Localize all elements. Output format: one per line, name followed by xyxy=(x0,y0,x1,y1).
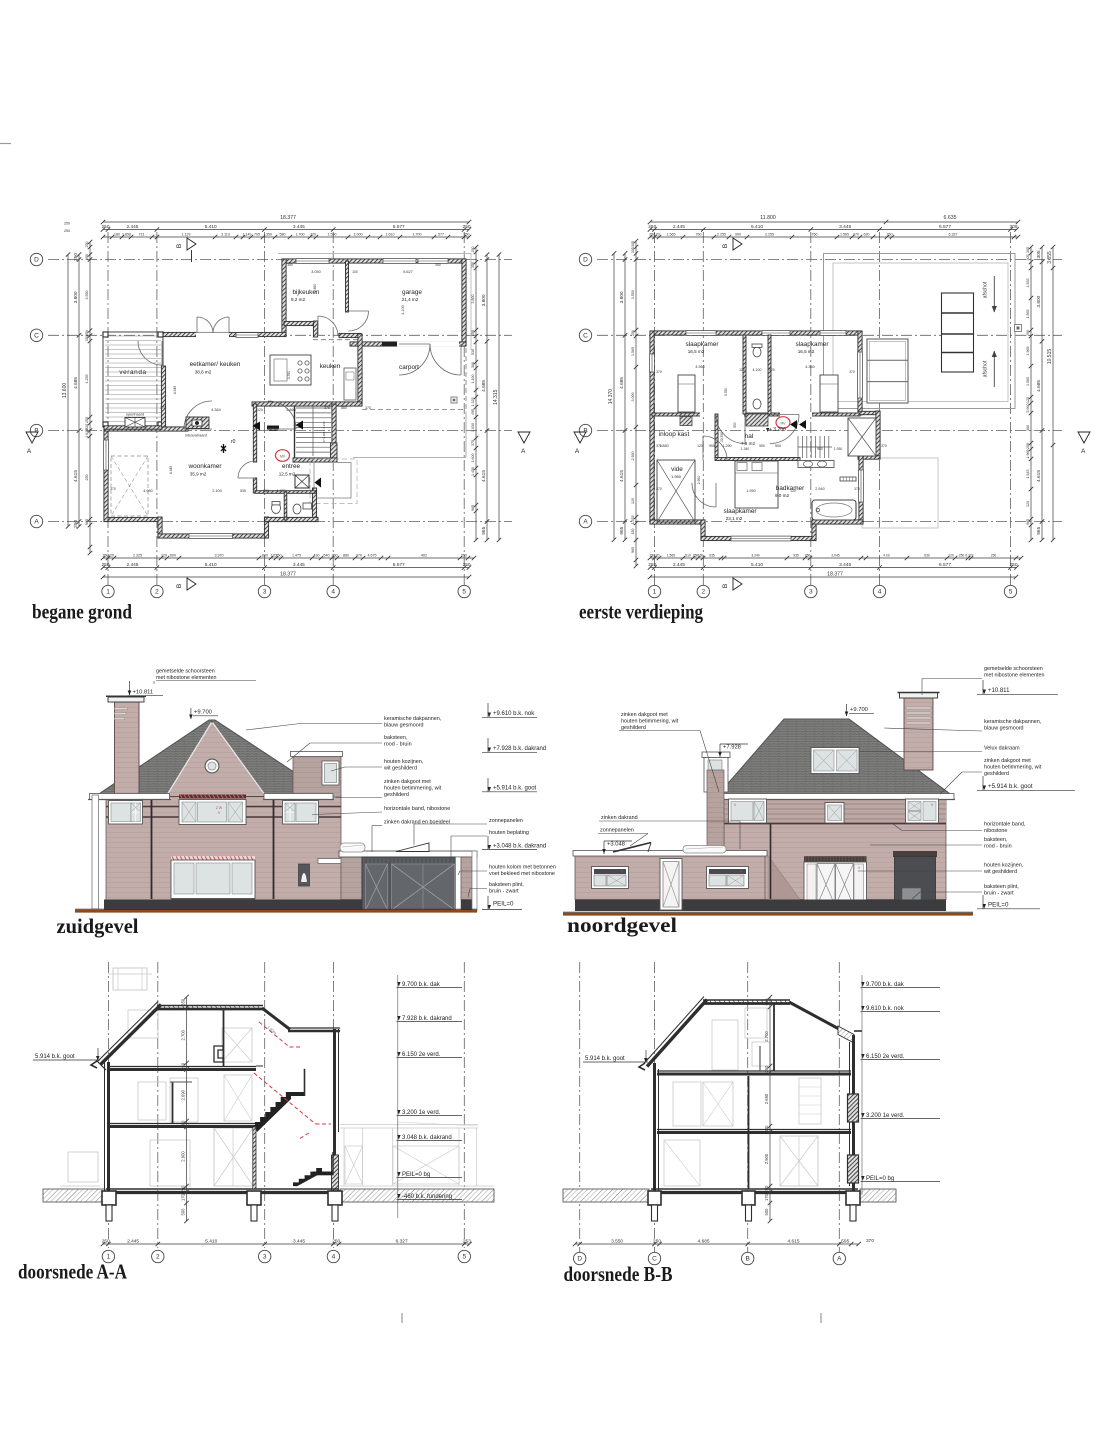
svg-text:3.445: 3.445 xyxy=(839,224,851,230)
svg-text:880: 880 xyxy=(341,406,347,410)
svg-text:afschot: afschot xyxy=(983,281,989,298)
svg-text:18.377: 18.377 xyxy=(280,572,296,578)
svg-text:12,5 m2: 12,5 m2 xyxy=(279,472,296,477)
svg-text:290: 290 xyxy=(764,1185,769,1193)
svg-text:305: 305 xyxy=(1036,250,1042,258)
svg-text:4.255: 4.255 xyxy=(85,375,89,384)
svg-text:120: 120 xyxy=(257,408,263,412)
svg-text:250: 250 xyxy=(464,232,470,236)
svg-text:120: 120 xyxy=(631,498,635,504)
svg-text:4.615: 4.615 xyxy=(619,470,625,482)
svg-text:zonnepanelen: zonnepanelen xyxy=(600,828,634,834)
svg-text:A: A xyxy=(837,1256,842,1263)
svg-text:3.550: 3.550 xyxy=(631,290,635,299)
svg-text:5.627: 5.627 xyxy=(403,270,413,274)
svg-text:1: 1 xyxy=(653,589,657,596)
svg-text:3.240: 3.240 xyxy=(751,553,759,557)
svg-text:250: 250 xyxy=(805,553,811,557)
svg-text:2.325: 2.325 xyxy=(133,553,142,557)
svg-text:14.315: 14.315 xyxy=(493,389,499,405)
svg-text:4.615: 4.615 xyxy=(481,470,487,482)
svg-text:1.565: 1.565 xyxy=(667,232,676,236)
svg-text:r0: r0 xyxy=(231,439,236,445)
svg-text:7.928 b.k. dakrand: 7.928 b.k. dakrand xyxy=(402,1016,452,1022)
svg-text:1.545: 1.545 xyxy=(1026,470,1030,479)
svg-text:120: 120 xyxy=(1026,501,1030,507)
svg-text:3.200 1e verd.: 3.200 1e verd. xyxy=(866,1113,905,1119)
svg-text:houten betimmering, wit: houten betimmering, wit xyxy=(621,719,679,725)
svg-text:250: 250 xyxy=(102,1238,110,1244)
svg-text:begane grond: begane grond xyxy=(32,600,132,624)
svg-text:350: 350 xyxy=(266,232,272,236)
svg-text:2.700: 2.700 xyxy=(181,1029,186,1040)
svg-text:4.615: 4.615 xyxy=(787,1238,799,1244)
svg-text:carport: carport xyxy=(399,364,419,371)
svg-text:630: 630 xyxy=(864,232,870,236)
svg-text:4: 4 xyxy=(332,1254,336,1261)
svg-text:760: 760 xyxy=(696,232,702,236)
svg-text:1.000: 1.000 xyxy=(354,232,363,236)
svg-text:2.700: 2.700 xyxy=(764,1031,769,1042)
svg-text:entree: entree xyxy=(282,463,301,470)
svg-text:2.445: 2.445 xyxy=(673,562,685,568)
svg-text:+9.610 b.k. nok: +9.610 b.k. nok xyxy=(493,711,535,717)
svg-text:760: 760 xyxy=(812,232,818,236)
svg-text:4.100: 4.100 xyxy=(401,305,405,315)
svg-text:D: D xyxy=(583,257,588,264)
svg-text:1.950: 1.950 xyxy=(746,489,756,493)
svg-text:4.00: 4.00 xyxy=(883,553,890,557)
svg-text:950: 950 xyxy=(817,447,823,451)
svg-text:3.445: 3.445 xyxy=(293,1238,305,1244)
svg-text:380: 380 xyxy=(471,362,475,368)
svg-text:320: 320 xyxy=(310,232,316,236)
svg-text:+7.928: +7.928 xyxy=(723,745,741,751)
svg-text:721: 721 xyxy=(139,232,145,236)
svg-text:11.800: 11.800 xyxy=(760,215,776,221)
svg-text:baksteen plint,: baksteen plint, xyxy=(489,882,524,888)
svg-text:600: 600 xyxy=(262,553,268,557)
svg-text:370: 370 xyxy=(656,487,662,491)
svg-text:PEIL=0 bg: PEIL=0 bg xyxy=(402,1172,430,1178)
svg-text:B: B xyxy=(34,428,38,435)
svg-text:zinken dakgoot met: zinken dakgoot met xyxy=(984,758,1031,764)
svg-text:4.685: 4.685 xyxy=(481,380,487,392)
svg-text:slaapkamer: slaapkamer xyxy=(723,508,757,515)
svg-text:23,1 m2: 23,1 m2 xyxy=(726,516,743,521)
svg-text:nibostone: nibostone xyxy=(984,828,1007,834)
svg-text:eerste verdieping: eerste verdieping xyxy=(579,600,703,624)
svg-text:3.550: 3.550 xyxy=(85,291,89,300)
svg-text:250: 250 xyxy=(73,520,79,528)
svg-text:370: 370 xyxy=(324,406,330,410)
svg-text:zuidgevel: zuidgevel xyxy=(57,914,139,938)
svg-text:370: 370 xyxy=(853,232,859,236)
svg-text:1.700: 1.700 xyxy=(296,232,305,236)
svg-text:6.577: 6.577 xyxy=(393,224,405,230)
svg-text:inloop kast: inloop kast xyxy=(659,431,690,438)
svg-text:120: 120 xyxy=(654,553,660,557)
svg-text:300: 300 xyxy=(764,1125,769,1133)
svg-text:3.800: 3.800 xyxy=(481,294,487,306)
svg-text:B: B xyxy=(176,584,183,588)
svg-text:openhaard: openhaard xyxy=(126,413,144,417)
svg-text:1.290: 1.290 xyxy=(723,444,732,448)
svg-text:3.800: 3.800 xyxy=(471,295,475,304)
svg-text:2.900: 2.900 xyxy=(181,1151,186,1162)
svg-text:935: 935 xyxy=(709,553,715,557)
svg-text:402: 402 xyxy=(421,553,427,557)
svg-text:3.550: 3.550 xyxy=(611,1238,623,1244)
svg-text:250: 250 xyxy=(64,229,70,233)
svg-text:1.969: 1.969 xyxy=(1026,450,1030,459)
svg-text:hal: hal xyxy=(745,433,754,440)
svg-text:gemetselde schoorsteen: gemetselde schoorsteen xyxy=(156,669,215,675)
svg-text:1.565: 1.565 xyxy=(1026,310,1030,319)
svg-text:250: 250 xyxy=(463,224,471,230)
svg-text:350: 350 xyxy=(435,263,441,267)
svg-text:250: 250 xyxy=(101,224,109,230)
svg-text:535: 535 xyxy=(240,489,246,493)
svg-text:garage: garage xyxy=(402,289,422,296)
svg-text:MV: MV xyxy=(780,421,786,425)
svg-text:3.800: 3.800 xyxy=(73,291,79,303)
svg-text:600: 600 xyxy=(170,553,176,557)
svg-text:zinken dakrand en boeideel: zinken dakrand en boeideel xyxy=(384,820,450,826)
svg-text:9.700 b.k. dak: 9.700 b.k. dak xyxy=(866,982,905,988)
svg-text:zinken dakgoot met: zinken dakgoot met xyxy=(621,712,668,718)
svg-text:2.445: 2.445 xyxy=(126,562,138,568)
svg-text:5.410: 5.410 xyxy=(205,1238,217,1244)
svg-text:keramische dakpannen,: keramische dakpannen, xyxy=(984,719,1042,725)
svg-text:350: 350 xyxy=(471,262,475,268)
svg-text:3.760: 3.760 xyxy=(287,371,291,380)
svg-text:1.565: 1.565 xyxy=(631,347,635,356)
svg-text:965: 965 xyxy=(619,526,625,534)
svg-text:250: 250 xyxy=(991,553,997,557)
svg-text:-460 b.k. fundering: -460 b.k. fundering xyxy=(402,1194,452,1200)
svg-text:wit geshilderd: wit geshilderd xyxy=(383,766,417,772)
svg-text:1: 1 xyxy=(106,589,110,596)
svg-text:250: 250 xyxy=(631,330,635,336)
svg-text:baksteen,: baksteen, xyxy=(984,837,1008,843)
svg-text:doorsnede B-B: doorsnede B-B xyxy=(564,1262,673,1286)
svg-text:20.350: 20.350 xyxy=(720,432,724,442)
svg-text:+3.048: +3.048 xyxy=(607,842,625,848)
svg-text:2: 2 xyxy=(156,1254,160,1261)
svg-text:510: 510 xyxy=(685,553,691,557)
svg-text:4.980: 4.980 xyxy=(143,489,153,493)
svg-text:houten kozijnen,: houten kozijnen, xyxy=(984,863,1024,869)
svg-text:950: 950 xyxy=(709,444,715,448)
svg-text:300: 300 xyxy=(181,1120,186,1128)
svg-text:1.565: 1.565 xyxy=(840,232,849,236)
svg-text:+10.811: +10.811 xyxy=(988,688,1010,694)
svg-text:260: 260 xyxy=(181,1062,186,1070)
svg-text:150: 150 xyxy=(698,553,704,557)
svg-text:3: 3 xyxy=(263,1254,267,1261)
svg-text:3: 3 xyxy=(809,589,813,596)
svg-text:horizontale band, nibostone: horizontale band, nibostone xyxy=(384,806,450,812)
svg-text:170: 170 xyxy=(764,1193,769,1201)
svg-text:voet bekleed met nibostone: voet bekleed met nibostone xyxy=(489,871,555,877)
svg-text:370: 370 xyxy=(365,406,371,410)
svg-text:6.635: 6.635 xyxy=(944,215,957,221)
svg-text:7,8 m2: 7,8 m2 xyxy=(741,441,755,446)
svg-text:3: 3 xyxy=(263,589,267,596)
svg-text:250: 250 xyxy=(887,232,893,236)
svg-text:900: 900 xyxy=(735,232,741,236)
svg-text:4: 4 xyxy=(331,589,335,596)
svg-text:5.410: 5.410 xyxy=(751,224,763,230)
svg-text:4.545: 4.545 xyxy=(173,386,177,395)
svg-text:305: 305 xyxy=(631,247,635,253)
svg-text:253: 253 xyxy=(463,1238,471,1244)
svg-text:2.255: 2.255 xyxy=(765,232,774,236)
svg-text:150: 150 xyxy=(631,529,635,535)
svg-text:MV: MV xyxy=(280,454,286,458)
svg-text:500: 500 xyxy=(764,1208,769,1216)
svg-text:horizontale band,: horizontale band, xyxy=(984,822,1026,828)
svg-text:5: 5 xyxy=(462,589,466,596)
svg-text:A: A xyxy=(27,448,32,455)
svg-text:965: 965 xyxy=(471,505,475,511)
svg-text:9,2 m2: 9,2 m2 xyxy=(291,297,305,302)
svg-text:zinken dakgoot met: zinken dakgoot met xyxy=(384,779,431,785)
svg-text:6.327: 6.327 xyxy=(396,1238,408,1244)
svg-text:250: 250 xyxy=(85,254,89,260)
svg-text:1.600: 1.600 xyxy=(471,454,475,463)
svg-text:370: 370 xyxy=(110,487,116,491)
svg-text:C: C xyxy=(583,333,588,340)
svg-text:120: 120 xyxy=(1026,397,1030,403)
svg-text:wit geshilderd: wit geshilderd xyxy=(983,869,1017,875)
svg-text:slaapkamer: slaapkamer xyxy=(685,341,719,348)
svg-text:met nibostone elementen: met nibostone elementen xyxy=(156,675,217,681)
svg-text:16,5 m2: 16,5 m2 xyxy=(798,349,815,354)
svg-text:795: 795 xyxy=(254,232,260,236)
svg-text:blauw gesmoord: blauw gesmoord xyxy=(984,726,1024,732)
svg-text:3.113: 3.113 xyxy=(221,232,230,236)
svg-text:965: 965 xyxy=(631,547,635,553)
svg-text:630: 630 xyxy=(924,553,930,557)
svg-text:4.685: 4.685 xyxy=(619,377,625,389)
svg-text:250: 250 xyxy=(1009,562,1017,568)
svg-text:baksteen plint,: baksteen plint, xyxy=(984,884,1019,890)
svg-text:21,4 m2: 21,4 m2 xyxy=(402,297,419,302)
svg-text:houten beplating: houten beplating xyxy=(489,830,529,836)
svg-text:2.950: 2.950 xyxy=(697,476,701,485)
svg-text:650: 650 xyxy=(764,998,769,1006)
svg-text:+10.811: +10.811 xyxy=(133,690,154,696)
svg-text:965: 965 xyxy=(481,526,487,534)
svg-text:3.970: 3.970 xyxy=(215,553,224,557)
svg-text:305: 305 xyxy=(1026,247,1030,253)
svg-text:120: 120 xyxy=(697,444,703,448)
svg-text:+5.914 b.k. goot: +5.914 b.k. goot xyxy=(493,786,537,792)
svg-text:3.048 b.k. dakrand: 3.048 b.k. dakrand xyxy=(402,1135,452,1141)
svg-text:250: 250 xyxy=(73,253,79,261)
svg-text:+9.700: +9.700 xyxy=(194,710,212,716)
svg-text:430: 430 xyxy=(314,553,320,557)
svg-text:1.590: 1.590 xyxy=(328,232,337,236)
svg-text:4.675: 4.675 xyxy=(368,553,377,557)
svg-text:A: A xyxy=(583,519,588,526)
svg-text:bruin - zwart: bruin - zwart xyxy=(984,891,1014,897)
svg-text:5.410: 5.410 xyxy=(205,562,217,568)
svg-text:5.410: 5.410 xyxy=(751,562,763,568)
svg-text:1.535: 1.535 xyxy=(1026,279,1030,288)
svg-text:noordgevel: noordgevel xyxy=(567,913,677,937)
svg-text:3.200 1e verd.: 3.200 1e verd. xyxy=(402,1110,441,1116)
svg-text:inbouwhaard: inbouwhaard xyxy=(185,434,207,438)
svg-text:2.690: 2.690 xyxy=(181,1089,186,1100)
svg-text:+5.914 b.k. goot: +5.914 b.k. goot xyxy=(988,783,1033,790)
svg-text:B: B xyxy=(746,1256,750,1263)
svg-text:4: 4 xyxy=(878,589,882,596)
svg-text:B: B xyxy=(722,584,729,588)
svg-text:3.860: 3.860 xyxy=(286,408,296,412)
svg-text:rood - bruin: rood - bruin xyxy=(984,844,1012,850)
svg-text:4.360: 4.360 xyxy=(805,365,815,369)
svg-text:6.327: 6.327 xyxy=(949,232,958,236)
svg-text:4.685: 4.685 xyxy=(698,1238,710,1244)
svg-text:370: 370 xyxy=(866,1238,874,1244)
svg-text:120: 120 xyxy=(739,368,745,372)
svg-text:1.370: 1.370 xyxy=(277,489,286,493)
svg-text:geshilderd: geshilderd xyxy=(621,725,646,731)
svg-text:9.610 b.k. nok: 9.610 b.k. nok xyxy=(866,1006,905,1012)
svg-text:13.600: 13.600 xyxy=(62,383,68,399)
svg-text:540: 540 xyxy=(324,553,330,557)
svg-text:250: 250 xyxy=(332,1238,340,1244)
svg-text:880: 880 xyxy=(343,553,349,557)
svg-text:A: A xyxy=(575,448,580,455)
svg-text:6.327: 6.327 xyxy=(965,553,973,557)
svg-text:250: 250 xyxy=(1026,330,1030,336)
svg-text:250: 250 xyxy=(332,553,338,557)
svg-text:6.577: 6.577 xyxy=(939,562,951,568)
svg-text:120: 120 xyxy=(948,553,954,557)
svg-text:14.370: 14.370 xyxy=(608,389,614,405)
svg-text:577: 577 xyxy=(438,232,444,236)
svg-text:C: C xyxy=(34,333,39,340)
svg-text:4.345: 4.345 xyxy=(169,466,173,475)
svg-text:250: 250 xyxy=(64,222,70,226)
svg-text:1.858: 1.858 xyxy=(122,232,131,236)
svg-text:6.577: 6.577 xyxy=(393,562,405,568)
svg-text:3.855: 3.855 xyxy=(1047,251,1053,264)
svg-text:1.950: 1.950 xyxy=(671,474,682,479)
svg-text:830: 830 xyxy=(263,489,269,493)
svg-text:1.100: 1.100 xyxy=(471,375,475,384)
svg-text:eetkamer/ keuken: eetkamer/ keuken xyxy=(190,361,241,368)
svg-text:houten kolom met betonnen: houten kolom met betonnen xyxy=(489,865,556,871)
svg-text:309: 309 xyxy=(1009,224,1017,230)
svg-text:590: 590 xyxy=(759,444,765,448)
svg-text:4.360: 4.360 xyxy=(695,365,705,369)
svg-text:250: 250 xyxy=(653,1238,661,1244)
svg-text:Z W: Z W xyxy=(216,806,223,810)
svg-text:370: 370 xyxy=(849,370,855,374)
svg-text:B: B xyxy=(176,244,183,248)
svg-text:3.000: 3.000 xyxy=(631,393,635,402)
svg-text:5: 5 xyxy=(462,1254,466,1261)
svg-text:2.445: 2.445 xyxy=(673,224,685,230)
svg-text:6.577: 6.577 xyxy=(939,224,951,230)
svg-text:18.377: 18.377 xyxy=(827,572,843,578)
svg-text:5: 5 xyxy=(1009,589,1013,596)
svg-text:bruin - zwart: bruin - zwart xyxy=(489,889,519,895)
svg-text:geshilderd: geshilderd xyxy=(384,792,409,798)
svg-text:+ 3.200: + 3.200 xyxy=(769,427,786,433)
svg-text:35,9 m2: 35,9 m2 xyxy=(190,472,207,477)
svg-text:1.535: 1.535 xyxy=(631,516,635,525)
svg-text:4.100: 4.100 xyxy=(753,368,762,372)
svg-text:350: 350 xyxy=(287,263,293,267)
svg-text:zinken dakrand: zinken dakrand xyxy=(601,815,638,821)
svg-text:1.030: 1.030 xyxy=(471,423,475,432)
svg-text:5.914 b.k. goot: 5.914 b.k. goot xyxy=(585,1056,625,1062)
svg-text:120: 120 xyxy=(790,489,796,493)
svg-text:2.100: 2.100 xyxy=(212,489,222,493)
svg-text:250: 250 xyxy=(648,224,656,230)
svg-text:geshilderd: geshilderd xyxy=(984,771,1009,777)
svg-text:250: 250 xyxy=(85,417,89,423)
svg-text:1.565: 1.565 xyxy=(1026,377,1030,386)
svg-text:2.940: 2.940 xyxy=(815,487,825,491)
svg-text:250: 250 xyxy=(1026,443,1030,449)
svg-text:Velux dakraam: Velux dakraam xyxy=(984,746,1020,752)
svg-text:120: 120 xyxy=(161,553,167,557)
svg-text:38,6 m2: 38,6 m2 xyxy=(195,370,212,375)
svg-text:afschot: afschot xyxy=(983,360,989,377)
svg-text:3.800: 3.800 xyxy=(1036,295,1042,307)
svg-text:houten betimmering, wit: houten betimmering, wit xyxy=(384,786,442,792)
svg-text:250: 250 xyxy=(276,553,282,557)
svg-text:3.050: 3.050 xyxy=(311,270,321,274)
svg-text:2.850: 2.850 xyxy=(313,284,317,293)
svg-text:slaapkamer: slaapkamer xyxy=(795,341,829,348)
svg-text:120: 120 xyxy=(108,553,114,557)
svg-text:2: 2 xyxy=(701,589,705,596)
svg-text:366: 366 xyxy=(1026,425,1030,431)
svg-text:3.445: 3.445 xyxy=(293,224,305,230)
svg-text:1.565: 1.565 xyxy=(667,553,675,557)
svg-text:3.800: 3.800 xyxy=(619,291,625,303)
svg-text:500: 500 xyxy=(181,1208,186,1216)
svg-text:9,0 m2: 9,0 m2 xyxy=(775,493,789,498)
svg-text:2: 2 xyxy=(155,589,159,596)
svg-text:17 x 188 = 3.230: 17 x 188 = 3.230 xyxy=(322,421,326,442)
svg-text:1.965: 1.965 xyxy=(1026,347,1030,356)
svg-text:250: 250 xyxy=(85,475,89,481)
svg-text:520: 520 xyxy=(769,368,775,372)
svg-text:900: 900 xyxy=(775,444,781,448)
svg-text:1.149: 1.149 xyxy=(243,232,252,236)
svg-text:met nibostone elementen: met nibostone elementen xyxy=(984,673,1045,679)
svg-text:2.445: 2.445 xyxy=(127,1238,139,1244)
svg-text:305: 305 xyxy=(1026,255,1030,261)
svg-text:2.255: 2.255 xyxy=(717,232,726,236)
svg-text:2.045: 2.045 xyxy=(831,553,839,557)
svg-text:10.515: 10.515 xyxy=(1047,349,1053,365)
svg-text:550: 550 xyxy=(733,422,737,428)
svg-text:120: 120 xyxy=(654,232,660,236)
svg-text:2.900: 2.900 xyxy=(764,1153,769,1164)
svg-text:250: 250 xyxy=(461,553,467,557)
svg-text:keramische dakpannen,: keramische dakpannen, xyxy=(384,716,442,722)
